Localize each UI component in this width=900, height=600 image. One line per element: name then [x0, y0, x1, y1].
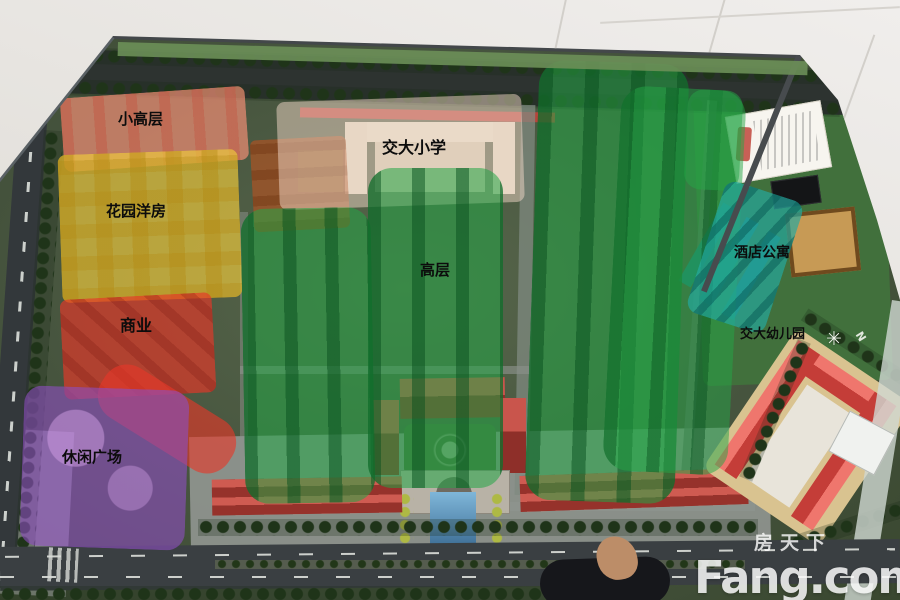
zone-label-shangye: 商业: [120, 318, 152, 334]
floor-tile-line: [600, 6, 900, 24]
crosswalk: [47, 547, 79, 583]
axis-wing-east: [500, 398, 526, 473]
zone-gaoceng-a: [240, 207, 375, 504]
south-sidewalk-trees: [198, 519, 758, 536]
zone-label-jiaodaxiaoxue: 交大小学: [382, 140, 446, 156]
zone-gaoceng-b: [368, 168, 503, 488]
south-edge-trees: [0, 586, 560, 600]
zone-label-xiuxianguangchang: 休闲广场: [62, 450, 122, 465]
zone-label-huayuanyangfang: 花园洋房: [106, 204, 166, 219]
zone-label-xiaogaoceng: 小高层: [118, 112, 163, 127]
zone-label-gaoceng: 高层: [420, 263, 450, 278]
zone-label-jiudiangongyu: 酒店公寓: [734, 246, 790, 260]
fang-watermark-en: Fang.com: [694, 551, 899, 600]
zone-xiuxianguangchang: [19, 385, 189, 551]
fang-watermark: 房天下 Fang.com: [694, 528, 899, 600]
model-photo: 小高层 花园洋房 商业 休闲广场 交大小学 高层 酒店公寓 交大幼儿园 ✳ N …: [0, 0, 900, 600]
zone-gaoceng-e: [683, 89, 743, 192]
zone-label-jiaodayoueryuan: 交大幼儿园: [740, 328, 805, 341]
floor-tile-line: [554, 0, 567, 50]
compass-star-icon: ✳: [826, 328, 842, 350]
zone-huayuanyangfang: [57, 149, 242, 303]
